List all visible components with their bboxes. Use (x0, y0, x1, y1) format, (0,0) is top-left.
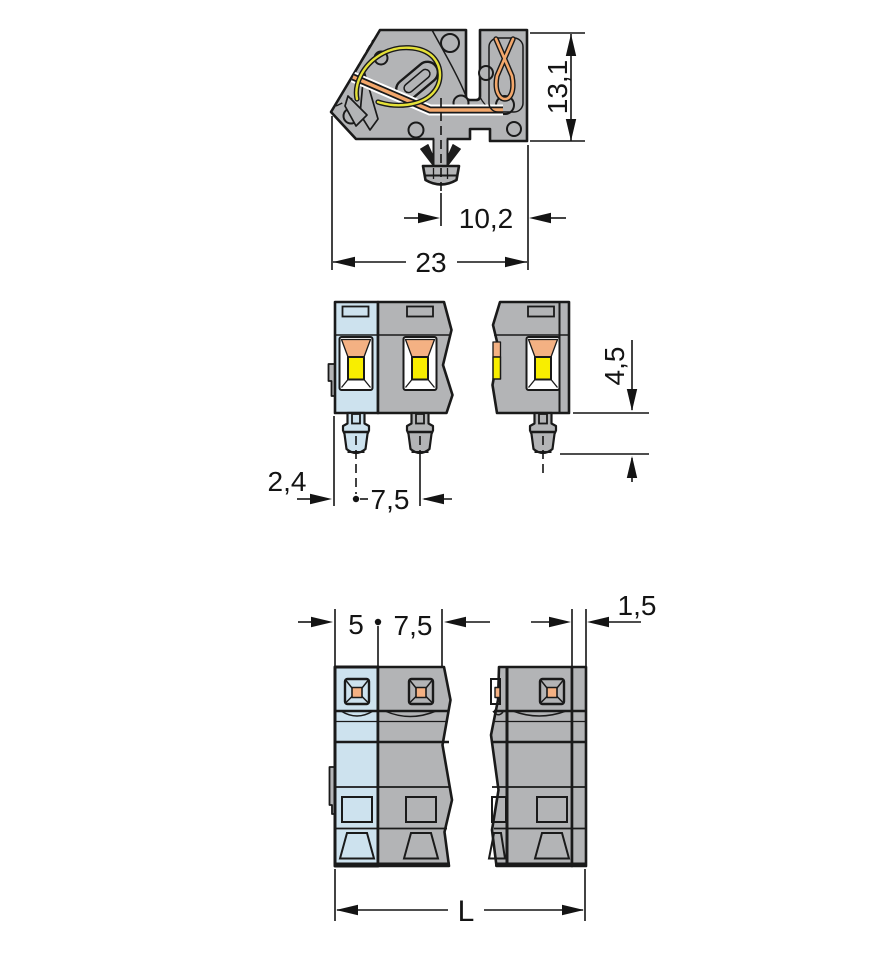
dim-foot-offset-label: 10,2 (459, 203, 514, 234)
wire-entry-funnel-1 (340, 337, 373, 390)
wire-entry-funnel-2 (404, 337, 437, 390)
dim-first-pole: 5 (298, 609, 364, 666)
end-plate (572, 667, 586, 866)
wire-entry-opening (412, 357, 428, 380)
dim-height: 13,1 (530, 33, 585, 141)
foot-barb-right (448, 145, 461, 167)
pole-n-body (491, 667, 572, 866)
side-view: 13,1 10,2 23 (331, 30, 585, 278)
dim-total-length-label: L (458, 895, 475, 928)
dim-first-pole-label: 5 (348, 609, 364, 640)
wire-entry-funnel-partial (493, 342, 501, 379)
wire-entry-opening (535, 357, 551, 380)
foot-barb-left (421, 145, 434, 167)
dim-pin-pitch-label: 7,5 (371, 484, 410, 515)
solder-pin-1 (343, 413, 369, 453)
dim-edge-to-pin-label: 2,4 (268, 466, 307, 497)
dim-end-plate: 1,5 (586, 590, 656, 666)
dim-pin-length: 4,5 (560, 340, 649, 482)
front-view: 2,4 7,5 4,5 (268, 302, 649, 515)
dim-pin-pitch: 7,5 (353, 458, 452, 515)
solder-pin-n (530, 413, 556, 453)
dim-edge-to-pin: 2,4 (268, 416, 334, 506)
dim-origin-dot (353, 496, 359, 502)
dim-depth-label: 23 (415, 247, 446, 278)
wire-entry-opening (348, 357, 364, 380)
dim-end-plate-label: 1,5 (618, 590, 657, 621)
technical-drawing-page: 13,1 10,2 23 (0, 0, 887, 977)
drawing-canvas: 13,1 10,2 23 (0, 0, 887, 977)
solder-pin-2 (407, 413, 433, 453)
dim-repeat-span (531, 609, 572, 666)
dim-total-length: L (335, 869, 585, 928)
dim-pole-pitch-label: 7,5 (394, 610, 433, 641)
dim-pole-pitch: 7,5 (375, 609, 490, 666)
dim-origin-dot (375, 619, 381, 625)
wire-entry-funnel-n (527, 337, 560, 390)
dim-pin-length-label: 4,5 (599, 347, 630, 386)
bottom-view: 5 7,5 1,5 L (298, 590, 656, 928)
dim-height-label: 13,1 (542, 60, 573, 115)
